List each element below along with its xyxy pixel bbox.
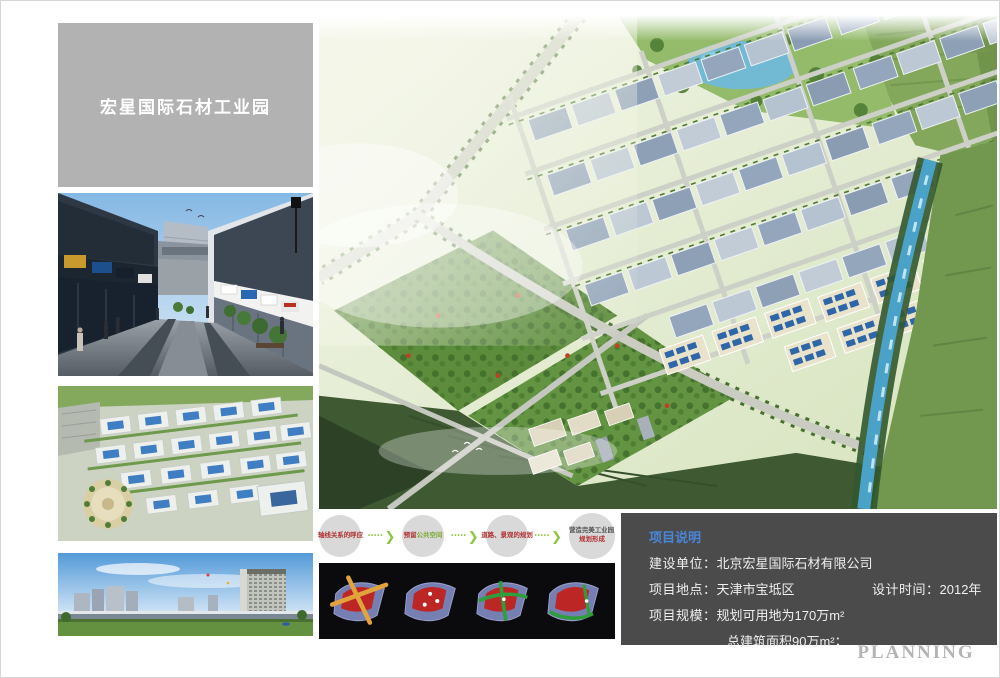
skyline-photo: [58, 553, 313, 636]
flow-step-1: 轴线关系的呼应: [319, 515, 361, 557]
info-heading: 项目说明: [649, 527, 997, 546]
title-box: 宏星国际石材工业园: [58, 23, 313, 187]
presentation-board: 宏星国际石材工业园: [0, 0, 1000, 678]
kite-icon: [207, 574, 210, 577]
info-row-location: 项目地点：天津市宝坻区 设计时间：2012年: [649, 579, 997, 598]
skyline-illustration: [58, 553, 313, 636]
flow-step-4: 营造完美工业园 规划形成: [569, 513, 615, 559]
flow-arrow-icon: ••••• ❯: [451, 530, 478, 543]
flow-step-3: 道路、景观的规划: [486, 515, 528, 557]
green-edge-concept-diagram: [544, 574, 604, 628]
flow-arrow-icon: ••••• ❯: [535, 530, 562, 543]
concept-flow: 轴线关系的呼应 ••••• ❯ 预留公共空间 ••••• ❯ 道路、景观的规划 …: [319, 512, 615, 560]
page-title: 宏星国际石材工业园: [100, 93, 271, 118]
axis-concept-diagram: [330, 574, 390, 628]
project-description-box: 项目说明 建设单位：北京宏星国际石材有限公司 项目地点：天津市宝坻区 设计时间：…: [621, 513, 997, 645]
road-cross-concept-diagram: [473, 574, 533, 628]
estate-aerial-illustration: [58, 386, 313, 541]
nodes-concept-diagram: [401, 574, 461, 628]
street-view-photo: [58, 193, 313, 376]
flow-arrow-icon: ••••• ❯: [368, 530, 395, 543]
estate-aerial-photo: [58, 386, 313, 541]
masterplan-illustration: [319, 15, 997, 509]
flow-step-2: 预留公共空间: [402, 515, 444, 557]
masterplan-aerial-render: [319, 15, 997, 509]
info-row-scale: 项目规模：规划可用地为170万m²: [649, 605, 997, 624]
concept-diagram-panel: [319, 563, 615, 639]
planning-label: PLANNING: [851, 642, 981, 664]
street-view-illustration: [58, 193, 313, 376]
info-row-builder: 建设单位：北京宏星国际石材有限公司: [649, 553, 997, 572]
